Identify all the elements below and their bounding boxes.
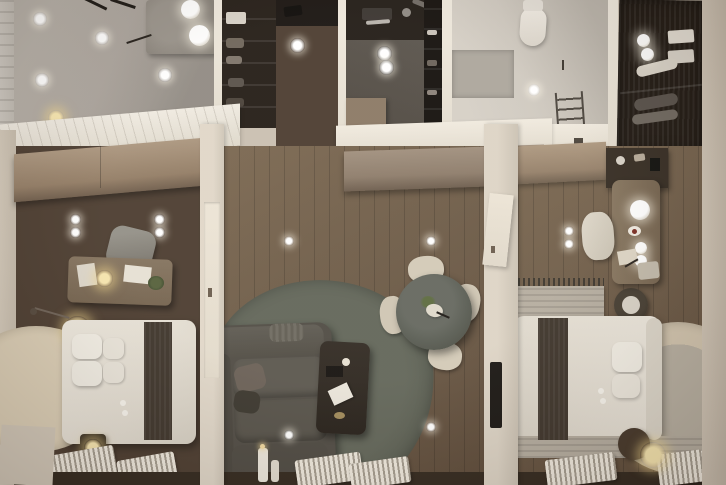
wall-sconce xyxy=(70,214,81,225)
pillow xyxy=(612,374,640,398)
table-tray-gold xyxy=(334,412,345,419)
shelf-jar xyxy=(427,30,437,35)
floor-candlestick xyxy=(258,448,268,482)
corner-wall-wedge xyxy=(0,425,56,485)
bed-decor-dot xyxy=(122,410,128,416)
desk-chair-right xyxy=(580,211,615,261)
pendant-sphere-light xyxy=(181,0,200,19)
shelf-jar xyxy=(427,90,437,95)
toilet-tank xyxy=(523,0,543,11)
wall-sconce xyxy=(154,214,165,225)
mat-fringe xyxy=(518,278,604,286)
sideboard-books xyxy=(650,158,660,171)
wardrobe-white-box xyxy=(668,29,695,44)
ceiling-spotlight xyxy=(290,38,305,53)
wall-hook xyxy=(562,60,564,70)
recessed-floor-light xyxy=(284,430,294,440)
stool-tray-white xyxy=(622,296,640,314)
ceiling-spotlight xyxy=(35,73,49,87)
ceiling-spotlight xyxy=(377,46,392,61)
table-book-dark xyxy=(326,366,343,377)
closet-sphere-light xyxy=(641,48,654,61)
pillow xyxy=(612,342,642,372)
ceiling-spotlight xyxy=(379,60,394,75)
tan-cabinet-right xyxy=(518,142,606,185)
bed-runner-dark xyxy=(144,322,172,440)
right-outer-wall xyxy=(702,0,726,485)
pillow-small xyxy=(103,362,124,383)
desk-paper xyxy=(77,263,98,287)
desk-cup-red xyxy=(632,229,637,234)
folded-clothes xyxy=(228,78,244,87)
kitchen-kettle xyxy=(402,8,411,17)
folded-clothes xyxy=(226,56,242,64)
wall-tv xyxy=(490,362,502,428)
desk-lamp-right xyxy=(630,200,650,220)
closet-shelf-box xyxy=(226,12,246,24)
desk-box xyxy=(637,261,660,280)
pillow xyxy=(72,361,102,386)
kitchen-appliance xyxy=(362,8,392,20)
desk-plant xyxy=(148,276,164,290)
wardrobe-dark xyxy=(617,0,706,153)
bed-runner-dark xyxy=(538,318,568,440)
door-handle-icon xyxy=(491,246,495,253)
apartment-render xyxy=(0,0,726,485)
bed-decor-dot xyxy=(120,400,126,406)
ceiling-spotlight xyxy=(33,12,47,26)
pillow xyxy=(72,334,102,359)
door-handle-icon xyxy=(208,288,212,297)
recessed-wall-light xyxy=(426,236,436,246)
pillow-small xyxy=(103,338,124,359)
sofa-back-cushions xyxy=(211,324,324,358)
ceiling-spotlight xyxy=(95,31,109,45)
desk-sphere-decor xyxy=(635,242,647,254)
wall-sconce xyxy=(564,239,574,249)
kitchen-lower-cabinet xyxy=(346,98,386,126)
wall-sconce xyxy=(154,227,165,238)
wall-sconce xyxy=(70,227,81,238)
ceiling-spotlight xyxy=(528,84,540,96)
pendant-sphere-light xyxy=(189,25,210,46)
sofa-pillow xyxy=(232,389,261,414)
bed-decor-dot xyxy=(600,398,606,404)
arc-lamp-base xyxy=(30,308,37,315)
recessed-floor-light xyxy=(426,422,436,432)
table-candle xyxy=(342,358,350,366)
sofa-throw xyxy=(269,323,304,342)
sideboard-decor xyxy=(616,156,625,165)
closet-sphere-light xyxy=(637,34,650,47)
folded-clothes xyxy=(226,38,244,48)
wall-sconce xyxy=(564,226,574,236)
ball-lamp-right xyxy=(640,442,666,468)
bed-decor-dot xyxy=(598,388,604,394)
floor-candlestick xyxy=(271,460,279,482)
wall-divider-right xyxy=(484,124,518,485)
wardrobe-seam xyxy=(100,146,101,188)
shelf-jar xyxy=(427,60,437,66)
recessed-wall-light xyxy=(284,236,294,246)
desk-lamp-left xyxy=(96,270,113,287)
door-left xyxy=(204,202,220,378)
candle-flame-icon xyxy=(260,444,265,449)
headboard-right xyxy=(646,318,662,440)
ceiling-spotlight xyxy=(158,68,172,82)
shower-tray xyxy=(452,50,514,98)
